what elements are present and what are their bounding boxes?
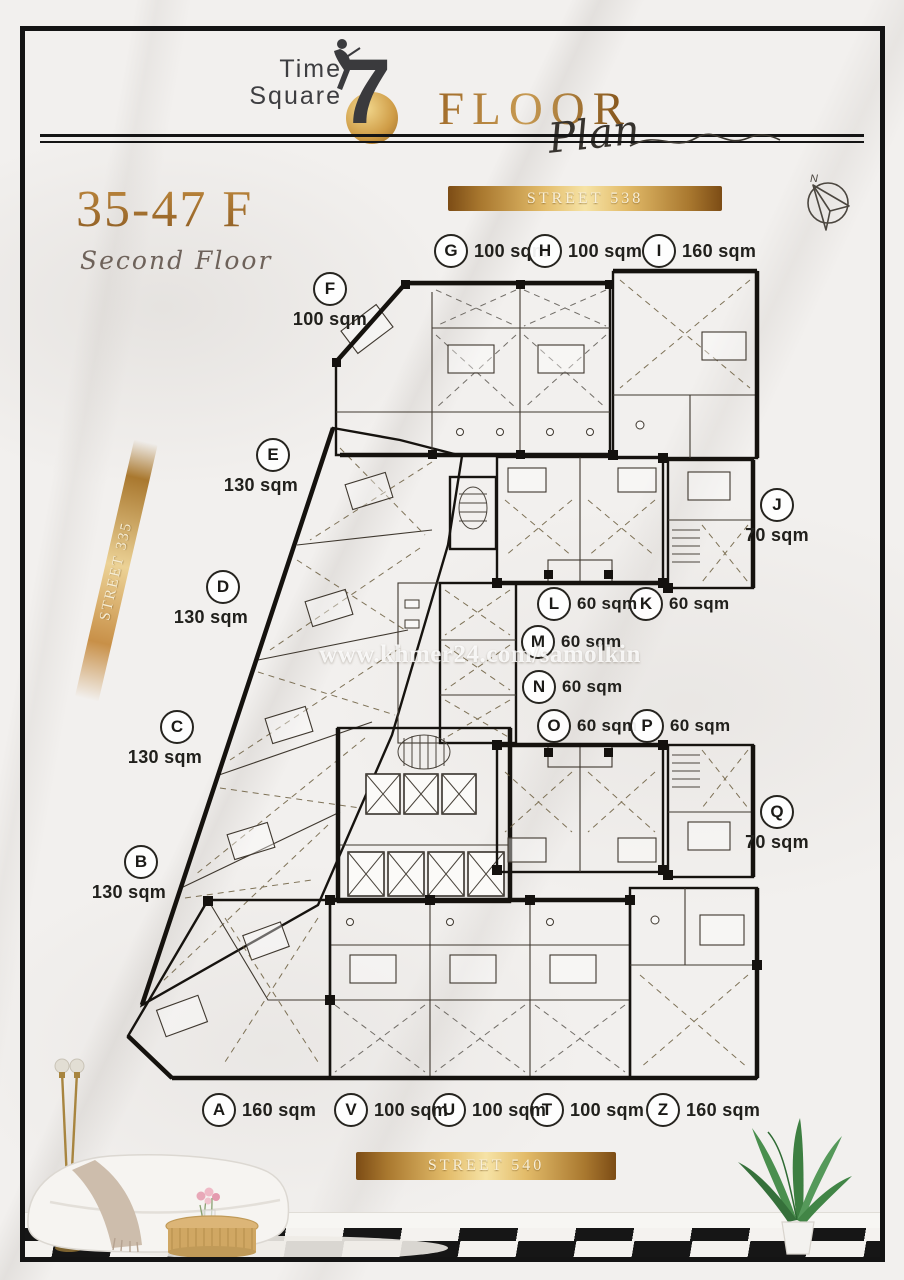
unit-area: 160 sqm (686, 1100, 760, 1121)
unit-label-Q: Q70 sqm (742, 795, 812, 853)
unit-label-C: C130 sqm (126, 710, 204, 768)
unit-letter-badge: I (642, 234, 676, 268)
floor-plan-poster: Time Square 7 FLOOR Plan 35-47 F Second … (0, 0, 904, 1280)
compass-north-label: N (810, 173, 818, 185)
unit-area: 60 sqm (577, 594, 637, 614)
unit-letter-badge: N (522, 670, 556, 704)
unit-label-P: P60 sqm (630, 709, 730, 743)
unit-area: 160 sqm (682, 241, 756, 262)
unit-label-D: D130 sqm (172, 570, 250, 628)
unit-label-F: F100 sqm (294, 272, 366, 330)
unit-area: 100 sqm (570, 1100, 644, 1121)
unit-area: 60 sqm (670, 716, 730, 736)
unit-letter-badge: E (256, 438, 290, 472)
unit-label-V: V100 sqm (334, 1093, 448, 1127)
elevator-shafts (338, 774, 510, 896)
unit-label-U: U100 sqm (432, 1093, 546, 1127)
unit-area: 100 sqm (374, 1100, 448, 1121)
unit-label-K: K60 sqm (629, 587, 729, 621)
unit-area: 130 sqm (92, 882, 166, 903)
unit-letter-badge: O (537, 709, 571, 743)
unit-label-B: B130 sqm (90, 845, 168, 903)
unit-area: 130 sqm (128, 747, 202, 768)
unit-letter-badge: F (313, 272, 347, 306)
unit-area: 60 sqm (562, 677, 622, 697)
unit-label-I: I160 sqm (642, 234, 756, 268)
unit-area: 100 sqm (568, 241, 642, 262)
unit-label-E: E130 sqm (222, 438, 300, 496)
unit-letter-badge: B (124, 845, 158, 879)
unit-area: 60 sqm (669, 594, 729, 614)
unit-label-N: N60 sqm (522, 670, 622, 704)
unit-letter-badge: A (202, 1093, 236, 1127)
unit-label-L: L60 sqm (537, 587, 637, 621)
unit-letter-badge: C (160, 710, 194, 744)
unit-letter-badge: Z (646, 1093, 680, 1127)
unit-shape-Q (668, 745, 753, 877)
unit-letter-badge: H (528, 234, 562, 268)
watermark: www.khmer24.com/samolkin (290, 641, 670, 669)
unit-letter-badge: D (206, 570, 240, 604)
unit-area: 60 sqm (577, 716, 637, 736)
unit-label-Z: Z160 sqm (646, 1093, 760, 1127)
unit-area: 100 sqm (472, 1100, 546, 1121)
unit-area: 130 sqm (224, 475, 298, 496)
unit-area: 100 sqm (293, 309, 367, 330)
unit-letter-badge: L (537, 587, 571, 621)
unit-letter-badge: P (630, 709, 664, 743)
unit-area: 70 sqm (745, 525, 809, 546)
unit-label-O: O60 sqm (537, 709, 637, 743)
unit-area: 130 sqm (174, 607, 248, 628)
unit-letter-badge: G (434, 234, 468, 268)
unit-shape-VUT (330, 900, 630, 1078)
unit-label-T: T100 sqm (530, 1093, 644, 1127)
unit-letter-badge: J (760, 488, 794, 522)
unit-label-A: A160 sqm (202, 1093, 316, 1127)
unit-shape-A (128, 900, 330, 1078)
unit-letter-badge: V (334, 1093, 368, 1127)
unit-label-J: J70 sqm (742, 488, 812, 546)
unit-area: 160 sqm (242, 1100, 316, 1121)
unit-label-H: H100 sqm (528, 234, 642, 268)
unit-letter-badge: Q (760, 795, 794, 829)
unit-area: 70 sqm (745, 832, 809, 853)
